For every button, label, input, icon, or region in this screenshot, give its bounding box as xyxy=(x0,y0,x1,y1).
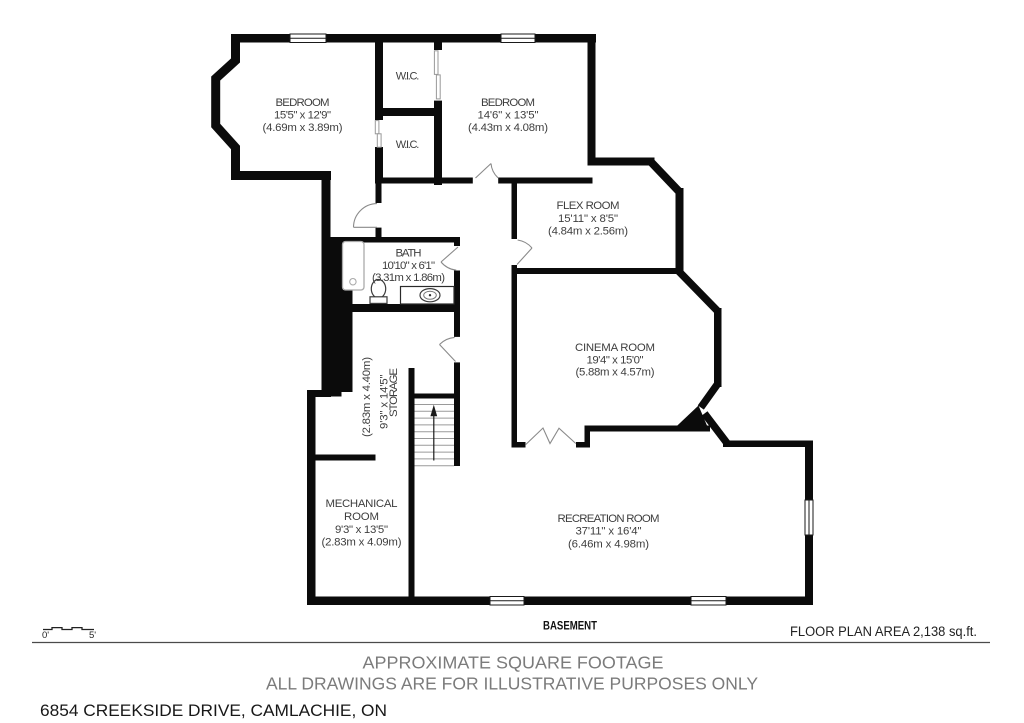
svg-text:5': 5' xyxy=(89,630,96,641)
svg-text:ALL DRAWINGS ARE FOR ILLUSTRAT: ALL DRAWINGS ARE FOR ILLUSTRATIVE PURPOS… xyxy=(266,674,758,694)
svg-text:MECHANICAL: MECHANICAL xyxy=(326,498,398,510)
svg-text:(6.46m x 4.98m): (6.46m x 4.98m) xyxy=(568,538,649,550)
svg-text:9'3" x 13'5": 9'3" x 13'5" xyxy=(335,524,388,536)
svg-text:STORAGE: STORAGE xyxy=(388,368,400,417)
svg-text:(2.83m x 4.40m): (2.83m x 4.40m) xyxy=(361,357,373,437)
svg-text:(4.43m x 4.08m): (4.43m x 4.08m) xyxy=(468,122,548,134)
svg-text:RECREATION ROOM: RECREATION ROOM xyxy=(558,513,660,525)
svg-text:(5.88m x 4.57m): (5.88m x 4.57m) xyxy=(576,367,655,379)
svg-text:14'6" x 13'5": 14'6" x 13'5" xyxy=(478,109,539,121)
svg-text:BASEMENT: BASEMENT xyxy=(543,621,597,633)
svg-text:FLOOR PLAN AREA 2,138 sq.ft.: FLOOR PLAN AREA 2,138 sq.ft. xyxy=(790,624,977,639)
svg-text:15'11" x 8'5": 15'11" x 8'5" xyxy=(558,213,618,225)
svg-text:FLEX ROOM: FLEX ROOM xyxy=(557,200,620,212)
svg-text:APPROXIMATE SQUARE FOOTAGE: APPROXIMATE SQUARE FOOTAGE xyxy=(363,653,664,673)
svg-text:10'10" x 6'1": 10'10" x 6'1" xyxy=(382,260,435,272)
svg-text:0': 0' xyxy=(42,630,49,641)
svg-text:15'5" x 12'9": 15'5" x 12'9" xyxy=(274,109,331,121)
svg-text:(4.69m x 3.89m): (4.69m x 3.89m) xyxy=(263,122,343,134)
svg-text:BEDROOM: BEDROOM xyxy=(481,97,535,109)
svg-text:BATH: BATH xyxy=(396,248,422,260)
svg-text:(2.83m x 4.09m): (2.83m x 4.09m) xyxy=(322,537,402,549)
svg-text:19'4" x 15'0": 19'4" x 15'0" xyxy=(587,354,644,366)
svg-text:CINEMA ROOM: CINEMA ROOM xyxy=(575,342,655,354)
svg-text:W.I.C.: W.I.C. xyxy=(396,139,420,151)
svg-text:ROOM: ROOM xyxy=(344,511,379,523)
svg-text:W.I.C.: W.I.C. xyxy=(396,71,420,83)
svg-text:BEDROOM: BEDROOM xyxy=(276,97,330,109)
svg-text:(3.31m x 1.86m): (3.31m x 1.86m) xyxy=(372,272,445,284)
svg-text:6854 CREEKSIDE DRIVE, CAMLACHI: 6854 CREEKSIDE DRIVE, CAMLACHIE, ON xyxy=(40,701,387,720)
svg-text:37'11" x 16'4": 37'11" x 16'4" xyxy=(576,526,642,538)
svg-text:(4.84m x 2.56m): (4.84m x 2.56m) xyxy=(548,226,628,238)
